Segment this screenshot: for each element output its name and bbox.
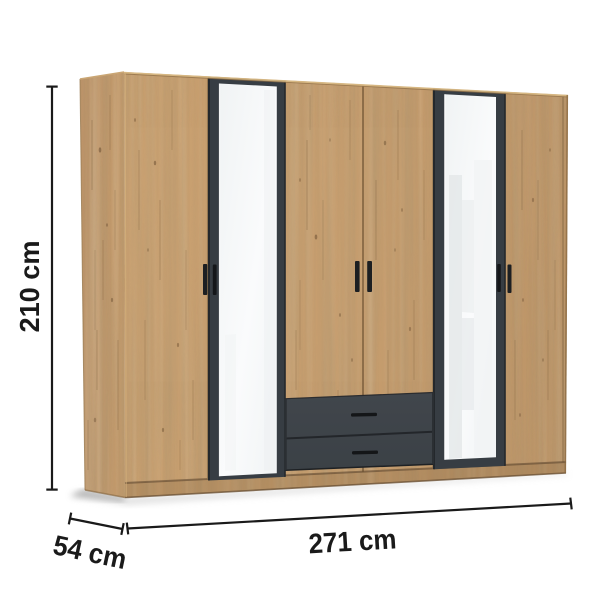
svg-text:210 cm: 210 cm [14, 241, 45, 333]
svg-text:271 cm: 271 cm [308, 523, 398, 559]
